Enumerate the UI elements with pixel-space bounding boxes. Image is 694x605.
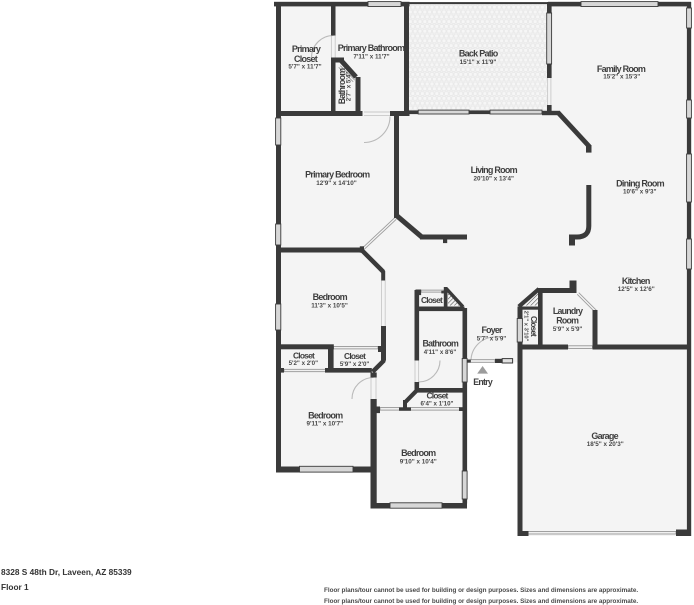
svg-text:9'11" x 10'7": 9'11" x 10'7" — [306, 421, 343, 428]
svg-text:Closet: Closet — [421, 295, 443, 305]
svg-text:Closet: Closet — [529, 316, 538, 337]
svg-text:6'4" x 1'10": 6'4" x 1'10" — [421, 401, 454, 408]
svg-text:Bedroom: Bedroom — [313, 292, 348, 302]
svg-text:Living Room: Living Room — [471, 165, 518, 175]
svg-text:Room: Room — [556, 315, 579, 325]
svg-text:Closet: Closet — [294, 54, 318, 64]
svg-text:15'1" x 11'9": 15'1" x 11'9" — [460, 59, 497, 66]
svg-text:Primary: Primary — [292, 44, 321, 54]
svg-text:7'11" x 11'7": 7'11" x 11'7" — [353, 53, 389, 60]
svg-text:4'11" x 8'6": 4'11" x 8'6" — [424, 349, 457, 356]
svg-text:20'10" x 13'4": 20'10" x 13'4" — [474, 176, 514, 183]
svg-text:Bathroom: Bathroom — [423, 338, 459, 348]
svg-text:Foyer: Foyer — [481, 325, 503, 335]
svg-text:12'5" x 12'6": 12'5" x 12'6" — [618, 286, 655, 293]
svg-text:5'9" x 2'0": 5'9" x 2'0" — [340, 361, 370, 368]
svg-text:Primary Bedroom: Primary Bedroom — [305, 169, 370, 179]
svg-text:Kitchen: Kitchen — [622, 276, 650, 286]
svg-text:Closet: Closet — [426, 391, 448, 401]
svg-text:Closet: Closet — [344, 351, 366, 361]
svg-text:11'3" x 10'5": 11'3" x 10'5" — [311, 302, 348, 309]
svg-text:Garage: Garage — [591, 431, 618, 441]
svg-text:Bedroom: Bedroom — [308, 411, 343, 421]
svg-text:Closet: Closet — [293, 350, 315, 360]
svg-text:Bedroom: Bedroom — [401, 448, 436, 458]
svg-text:5'7" x 5'9": 5'7" x 5'9" — [477, 336, 507, 343]
svg-text:Primary Bathroom: Primary Bathroom — [338, 43, 405, 53]
svg-text:5'7" x 11'7": 5'7" x 11'7" — [288, 64, 321, 71]
svg-text:15'2" x 15'3": 15'2" x 15'3" — [603, 73, 640, 80]
svg-text:18'5" x 20'3": 18'5" x 20'3" — [587, 441, 624, 448]
svg-text:Back Patio: Back Patio — [459, 49, 499, 59]
svg-text:9'10" x 10'4": 9'10" x 10'4" — [400, 458, 437, 465]
svg-text:2'1" x 3'10": 2'1" x 3'10" — [522, 311, 528, 342]
svg-text:5'9" x 5'9": 5'9" x 5'9" — [553, 326, 583, 333]
svg-text:5'2" x 2'0": 5'2" x 2'0" — [289, 360, 319, 367]
svg-text:12'9" x 14'10": 12'9" x 14'10" — [316, 180, 356, 187]
svg-text:10'6" x 9'3": 10'6" x 9'3" — [623, 189, 656, 196]
svg-text:Dining Room: Dining Room — [616, 179, 664, 189]
svg-text:2'7" x 5'4": 2'7" x 5'4" — [346, 72, 353, 102]
svg-text:Entry: Entry — [473, 377, 493, 387]
